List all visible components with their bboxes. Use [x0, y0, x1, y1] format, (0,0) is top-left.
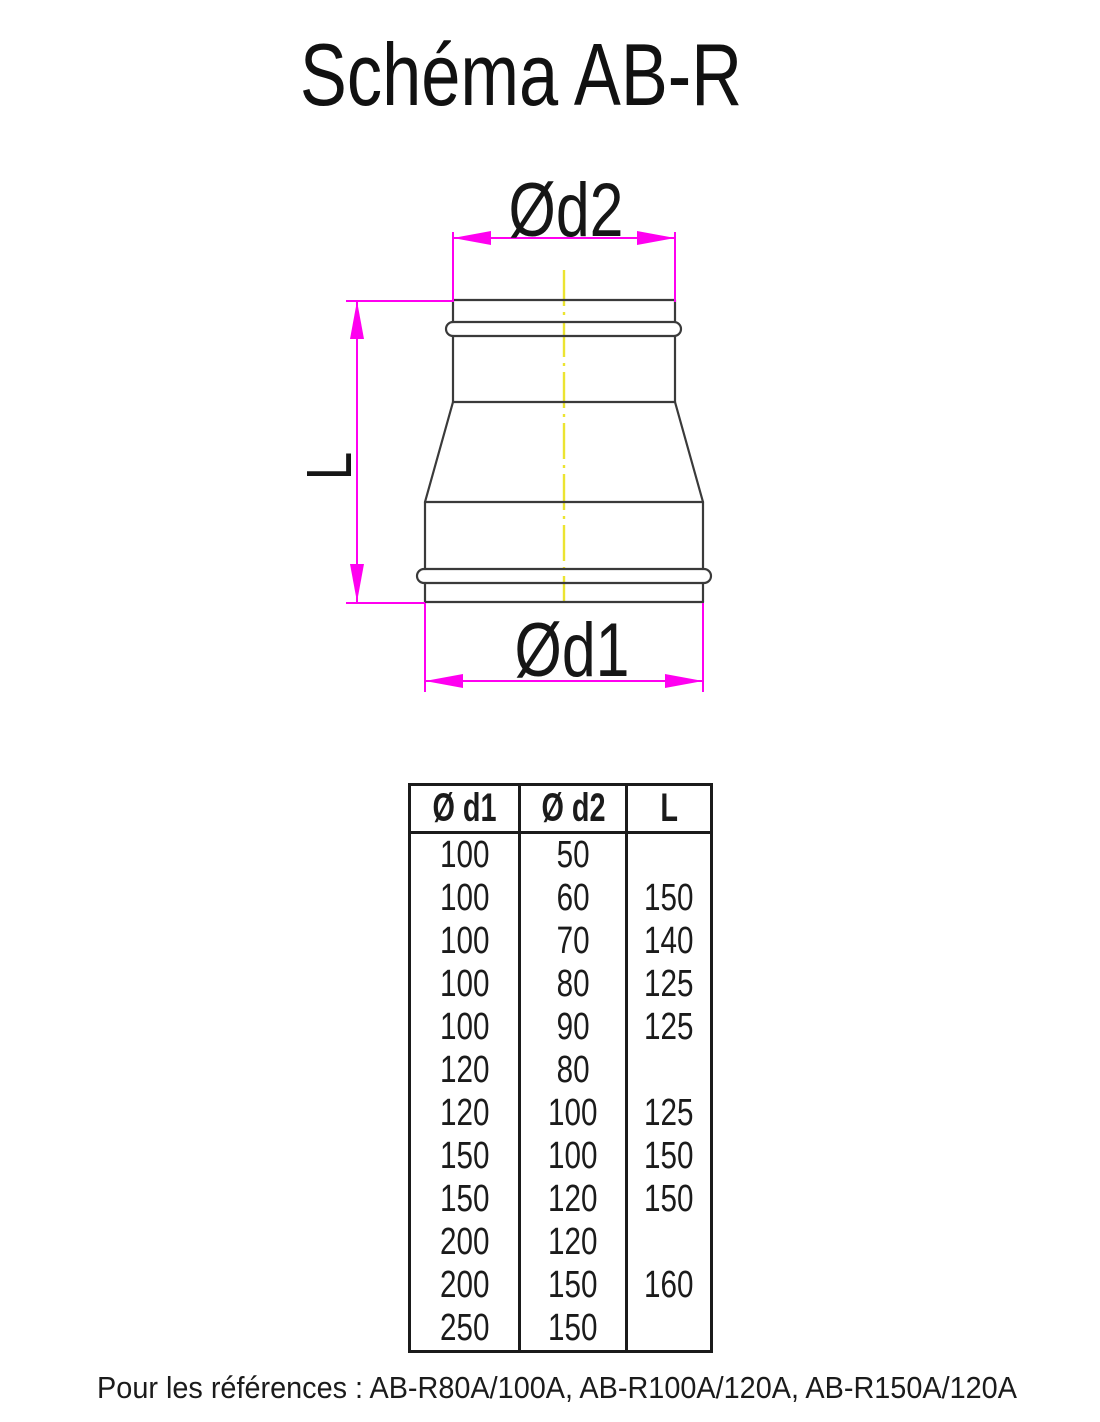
cell-d2: 120	[520, 1178, 627, 1221]
cell-d1: 120	[410, 1049, 520, 1092]
cell-d2: 70	[520, 920, 627, 963]
d1-label: Ød1	[515, 608, 630, 693]
cell-d2: 90	[520, 1006, 627, 1049]
table-row: 100 50	[410, 833, 712, 878]
cell-d1: 120	[410, 1092, 520, 1135]
cell-d1: 100	[410, 963, 520, 1006]
cell-d2: 100	[520, 1092, 627, 1135]
cell-l: 150	[627, 1135, 712, 1178]
table-row: 250 150	[410, 1307, 712, 1352]
table-row: 200 120	[410, 1221, 712, 1264]
cell-d1: 150	[410, 1135, 520, 1178]
cell-d2: 50	[520, 833, 627, 878]
table-row: 100 90 125	[410, 1006, 712, 1049]
cell-d2: 80	[520, 1049, 627, 1092]
cell-d1: 150	[410, 1178, 520, 1221]
table-row: 150 120 150	[410, 1178, 712, 1221]
cell-l: 125	[627, 1006, 712, 1049]
cell-l: 140	[627, 920, 712, 963]
cell-d1: 100	[410, 920, 520, 963]
diagram-labels: Ød2 L Ød1	[295, 168, 630, 693]
cell-l: 125	[627, 963, 712, 1006]
cell-d2: 150	[520, 1264, 627, 1307]
d1-arrow-right	[665, 674, 703, 688]
table-row: 150 100 150	[410, 1135, 712, 1178]
cell-d2: 60	[520, 877, 627, 920]
table-row: 100 60 150	[410, 877, 712, 920]
d2-label: Ød2	[509, 168, 624, 253]
cell-d2: 80	[520, 963, 627, 1006]
cell-d1: 200	[410, 1221, 520, 1264]
length-arrow-up	[350, 301, 364, 339]
header-d1: Ø d1	[410, 785, 520, 833]
cell-l	[627, 1307, 712, 1352]
d2-arrow-left	[453, 231, 491, 245]
cell-l: 150	[627, 877, 712, 920]
d1-arrow-left	[425, 674, 463, 688]
cell-d1: 200	[410, 1264, 520, 1307]
references-note: Pour les références : AB-R80A/100A, AB-R…	[97, 1367, 1017, 1409]
header-l: L	[627, 785, 712, 833]
cell-l: 125	[627, 1092, 712, 1135]
cell-d1: 100	[410, 877, 520, 920]
dimensions-table: Ø d1 Ø d2 L 100 50 100 60 150 100 70 140…	[408, 783, 713, 1353]
cone-right-edge	[675, 402, 703, 502]
table-row: 100 70 140	[410, 920, 712, 963]
length-arrow-down	[350, 564, 364, 602]
table-row: 120 80	[410, 1049, 712, 1092]
cell-l	[627, 1049, 712, 1092]
length-label: L	[295, 452, 366, 480]
d2-arrow-right	[637, 231, 675, 245]
cell-d2: 100	[520, 1135, 627, 1178]
cell-l: 160	[627, 1264, 712, 1307]
header-d2: Ø d2	[520, 785, 627, 833]
dimensions-table-header: Ø d1 Ø d2 L	[410, 785, 712, 833]
cell-d1: 100	[410, 833, 520, 878]
cell-l	[627, 833, 712, 878]
spec-table-body: 100 50 100 60 150 100 70 140 100 80 125 …	[410, 833, 712, 1352]
cone-left-edge	[425, 402, 453, 502]
table-row: 200 150 160	[410, 1264, 712, 1307]
cell-l	[627, 1221, 712, 1264]
cell-d2: 150	[520, 1307, 627, 1352]
cell-d1: 100	[410, 1006, 520, 1049]
cell-l: 150	[627, 1178, 712, 1221]
cell-d1: 250	[410, 1307, 520, 1352]
table-row: 120 100 125	[410, 1092, 712, 1135]
cell-d2: 120	[520, 1221, 627, 1264]
table-row: 100 80 125	[410, 963, 712, 1006]
